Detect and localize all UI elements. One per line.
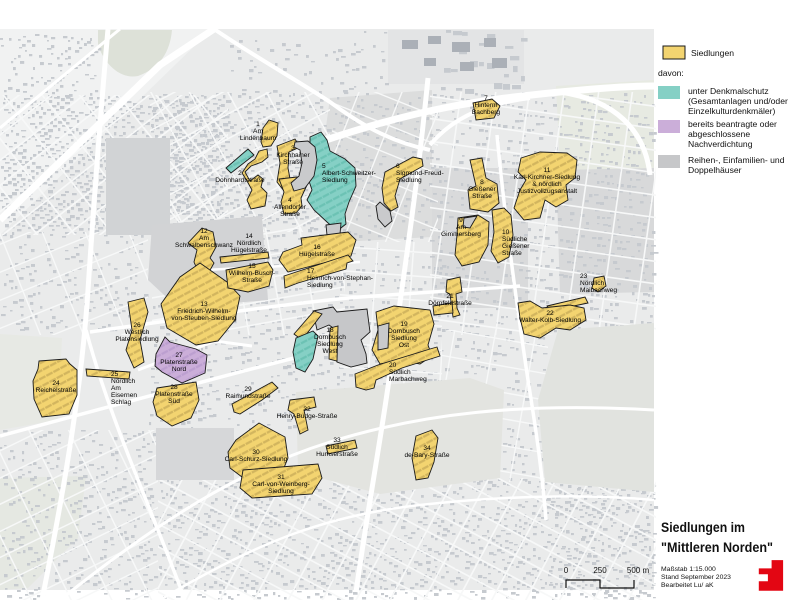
svg-text:Siedlung: Siedlung (391, 335, 417, 342)
svg-text:Dörpfeldstraße: Dörpfeldstraße (428, 300, 472, 307)
svg-text:Gießener: Gießener (502, 243, 530, 250)
svg-text:Straße: Straße (502, 250, 522, 257)
svg-text:Dohnhardtstraße: Dohnhardtstraße (215, 177, 265, 184)
svg-text:27: 27 (175, 352, 183, 359)
svg-text:20: 20 (389, 362, 397, 369)
svg-text:Süd: Süd (168, 398, 180, 405)
svg-text:Marbachweg: Marbachweg (389, 376, 427, 383)
svg-text:19: 19 (400, 321, 408, 328)
svg-text:Hügelstraße: Hügelstraße (231, 247, 267, 254)
svg-text:Siedlung: Siedlung (317, 341, 343, 348)
svg-text:Reihen-, Einfamilien- und: Reihen-, Einfamilien- und (688, 155, 785, 165)
svg-text:Eisernen: Eisernen (111, 392, 137, 399)
svg-text:West: West (323, 348, 338, 355)
svg-text:Gießener: Gießener (468, 186, 496, 193)
svg-text:abgeschlossene: abgeschlossene (688, 129, 750, 139)
svg-text:& nördlich: & nördlich (532, 181, 562, 188)
svg-text:Humserstraße: Humserstraße (316, 451, 358, 458)
svg-text:Am: Am (111, 385, 121, 392)
svg-text:Straße: Straße (242, 277, 262, 284)
svg-text:17: 17 (307, 268, 315, 275)
svg-text:0: 0 (564, 566, 569, 575)
svg-text:Ost: Ost (399, 342, 409, 349)
svg-text:16: 16 (313, 244, 321, 251)
svg-text:Doppelhäuser: Doppelhäuser (688, 165, 742, 175)
svg-text:Nachverdichtung: Nachverdichtung (688, 139, 753, 149)
svg-text:Friedrich-Wilhelm-: Friedrich-Wilhelm- (177, 308, 230, 315)
svg-text:Straße: Straße (280, 211, 300, 218)
svg-text:31: 31 (277, 474, 285, 481)
svg-text:18: 18 (326, 327, 334, 334)
svg-text:Südlich: Südlich (326, 444, 348, 451)
svg-text:Schwalbenschwanz: Schwalbenschwanz (175, 242, 233, 249)
svg-text:12: 12 (200, 228, 208, 235)
svg-text:Platenstraße: Platenstraße (155, 391, 193, 398)
svg-text:Platensiedlung: Platensiedlung (115, 336, 159, 343)
svg-text:Bearbeitet Lu/ aK: Bearbeitet Lu/ aK (661, 582, 714, 589)
svg-text:Nord: Nord (172, 366, 187, 373)
svg-text:11: 11 (544, 167, 551, 174)
svg-text:Dornbusch: Dornbusch (388, 328, 420, 335)
svg-text:Westlich: Westlich (125, 329, 150, 336)
svg-text:Henry-Budge-Straße: Henry-Budge-Straße (277, 413, 338, 420)
svg-text:Siedlung: Siedlung (396, 177, 422, 184)
svg-text:de-Bary-Straße: de-Bary-Straße (404, 452, 449, 459)
svg-text:7: 7 (484, 95, 488, 102)
svg-text:25: 25 (111, 371, 119, 378)
svg-text:Carl-Schurz-Siedlung: Carl-Schurz-Siedlung (225, 456, 288, 463)
svg-text:4: 4 (288, 197, 292, 204)
svg-text:Nördlich: Nördlich (580, 280, 605, 287)
svg-text:Albert-Schweitzer-: Albert-Schweitzer- (322, 170, 376, 177)
svg-text:(Gesamtanlagen und/oder: (Gesamtanlagen und/oder (688, 96, 788, 106)
svg-text:Bachberg: Bachberg (472, 109, 501, 116)
svg-text:Südliche: Südliche (502, 236, 528, 243)
svg-text:Einzelkulturdenkmäler): Einzelkulturdenkmäler) (688, 106, 776, 116)
svg-text:Raimundstraße: Raimundstraße (225, 393, 270, 400)
svg-text:Schlag: Schlag (111, 399, 131, 406)
svg-text:23: 23 (580, 273, 588, 280)
svg-text:1: 1 (256, 121, 260, 128)
svg-text:Maibachweg: Maibachweg (580, 287, 617, 294)
svg-text:Dornbusch: Dornbusch (314, 334, 346, 341)
svg-text:3: 3 (291, 145, 295, 152)
svg-text:5: 5 (322, 163, 326, 170)
svg-text:29: 29 (244, 386, 252, 393)
svg-text:Wilhelm-Busch-: Wilhelm-Busch- (229, 270, 275, 277)
svg-text:500 m: 500 m (627, 566, 650, 575)
svg-text:davon:: davon: (658, 68, 684, 78)
svg-text:Platenstraße: Platenstraße (160, 359, 198, 366)
svg-text:14: 14 (245, 233, 253, 240)
svg-text:22: 22 (546, 310, 554, 317)
svg-text:Heinrich-von-Stephan-: Heinrich-von-Stephan- (307, 275, 373, 282)
svg-text:Maßstab 1:15.000: Maßstab 1:15.000 (661, 566, 716, 573)
svg-text:2: 2 (238, 170, 242, 177)
svg-text:33: 33 (333, 437, 341, 444)
svg-text:Justizvollzugsanstalt: Justizvollzugsanstalt (517, 188, 577, 195)
svg-text:21: 21 (446, 293, 454, 300)
svg-text:Kirchhainer: Kirchhainer (276, 152, 310, 159)
svg-text:Hügelstraße: Hügelstraße (299, 251, 335, 258)
svg-text:15: 15 (248, 263, 256, 270)
svg-text:250: 250 (593, 566, 607, 575)
svg-text:Stand September 2023: Stand September 2023 (661, 574, 731, 581)
svg-text:Reichelstraße: Reichelstraße (36, 387, 77, 394)
svg-text:Am: Am (253, 128, 263, 135)
svg-text:Carl-von-Weinberg-: Carl-von-Weinberg- (252, 481, 309, 488)
svg-text:Gimmersberg: Gimmersberg (441, 231, 481, 238)
svg-text:unter Denkmalschutz: unter Denkmalschutz (688, 86, 769, 96)
svg-text:Allendorfer: Allendorfer (274, 204, 307, 211)
svg-text:Straße: Straße (283, 159, 303, 166)
svg-text:Straße: Straße (472, 193, 492, 200)
svg-text:30: 30 (252, 449, 260, 456)
svg-text:Siedlungen im: Siedlungen im (661, 519, 745, 535)
svg-text:Siedlungen: Siedlungen (691, 48, 734, 58)
svg-text:Südlich: Südlich (389, 369, 411, 376)
svg-text:Karl-Kirchner-Siedlung: Karl-Kirchner-Siedlung (514, 174, 581, 181)
svg-text:8: 8 (480, 179, 484, 186)
svg-text:Nördlich: Nördlich (237, 240, 262, 247)
svg-text:Nördlich: Nördlich (111, 378, 136, 385)
svg-text:"Mittleren Norden": "Mittleren Norden" (661, 539, 773, 555)
svg-text:von-Steuben-Siedlung: von-Steuben-Siedlung (171, 315, 237, 322)
svg-text:24: 24 (52, 380, 60, 387)
svg-text:Hinterm: Hinterm (474, 102, 498, 109)
svg-text:Walter-Kolb-Siedlung: Walter-Kolb-Siedlung (519, 317, 581, 324)
svg-text:26: 26 (133, 322, 141, 329)
svg-text:Siedlung: Siedlung (268, 488, 294, 495)
svg-text:6: 6 (396, 163, 400, 170)
svg-text:10: 10 (502, 229, 510, 236)
svg-text:13: 13 (200, 301, 208, 308)
svg-text:34: 34 (423, 445, 431, 452)
svg-text:Lindenbaum: Lindenbaum (240, 135, 277, 142)
svg-text:Sigmund-Freud-: Sigmund-Freud- (396, 170, 444, 177)
svg-text:28: 28 (170, 384, 178, 391)
svg-text:Siedlung: Siedlung (322, 177, 348, 184)
svg-text:Am: Am (199, 235, 209, 242)
svg-text:bereits beantragte oder: bereits beantragte oder (688, 119, 777, 129)
svg-text:Siedlung: Siedlung (307, 282, 333, 289)
svg-text:Am: Am (456, 224, 466, 231)
svg-text:9: 9 (459, 217, 463, 224)
svg-text:32: 32 (303, 406, 311, 413)
